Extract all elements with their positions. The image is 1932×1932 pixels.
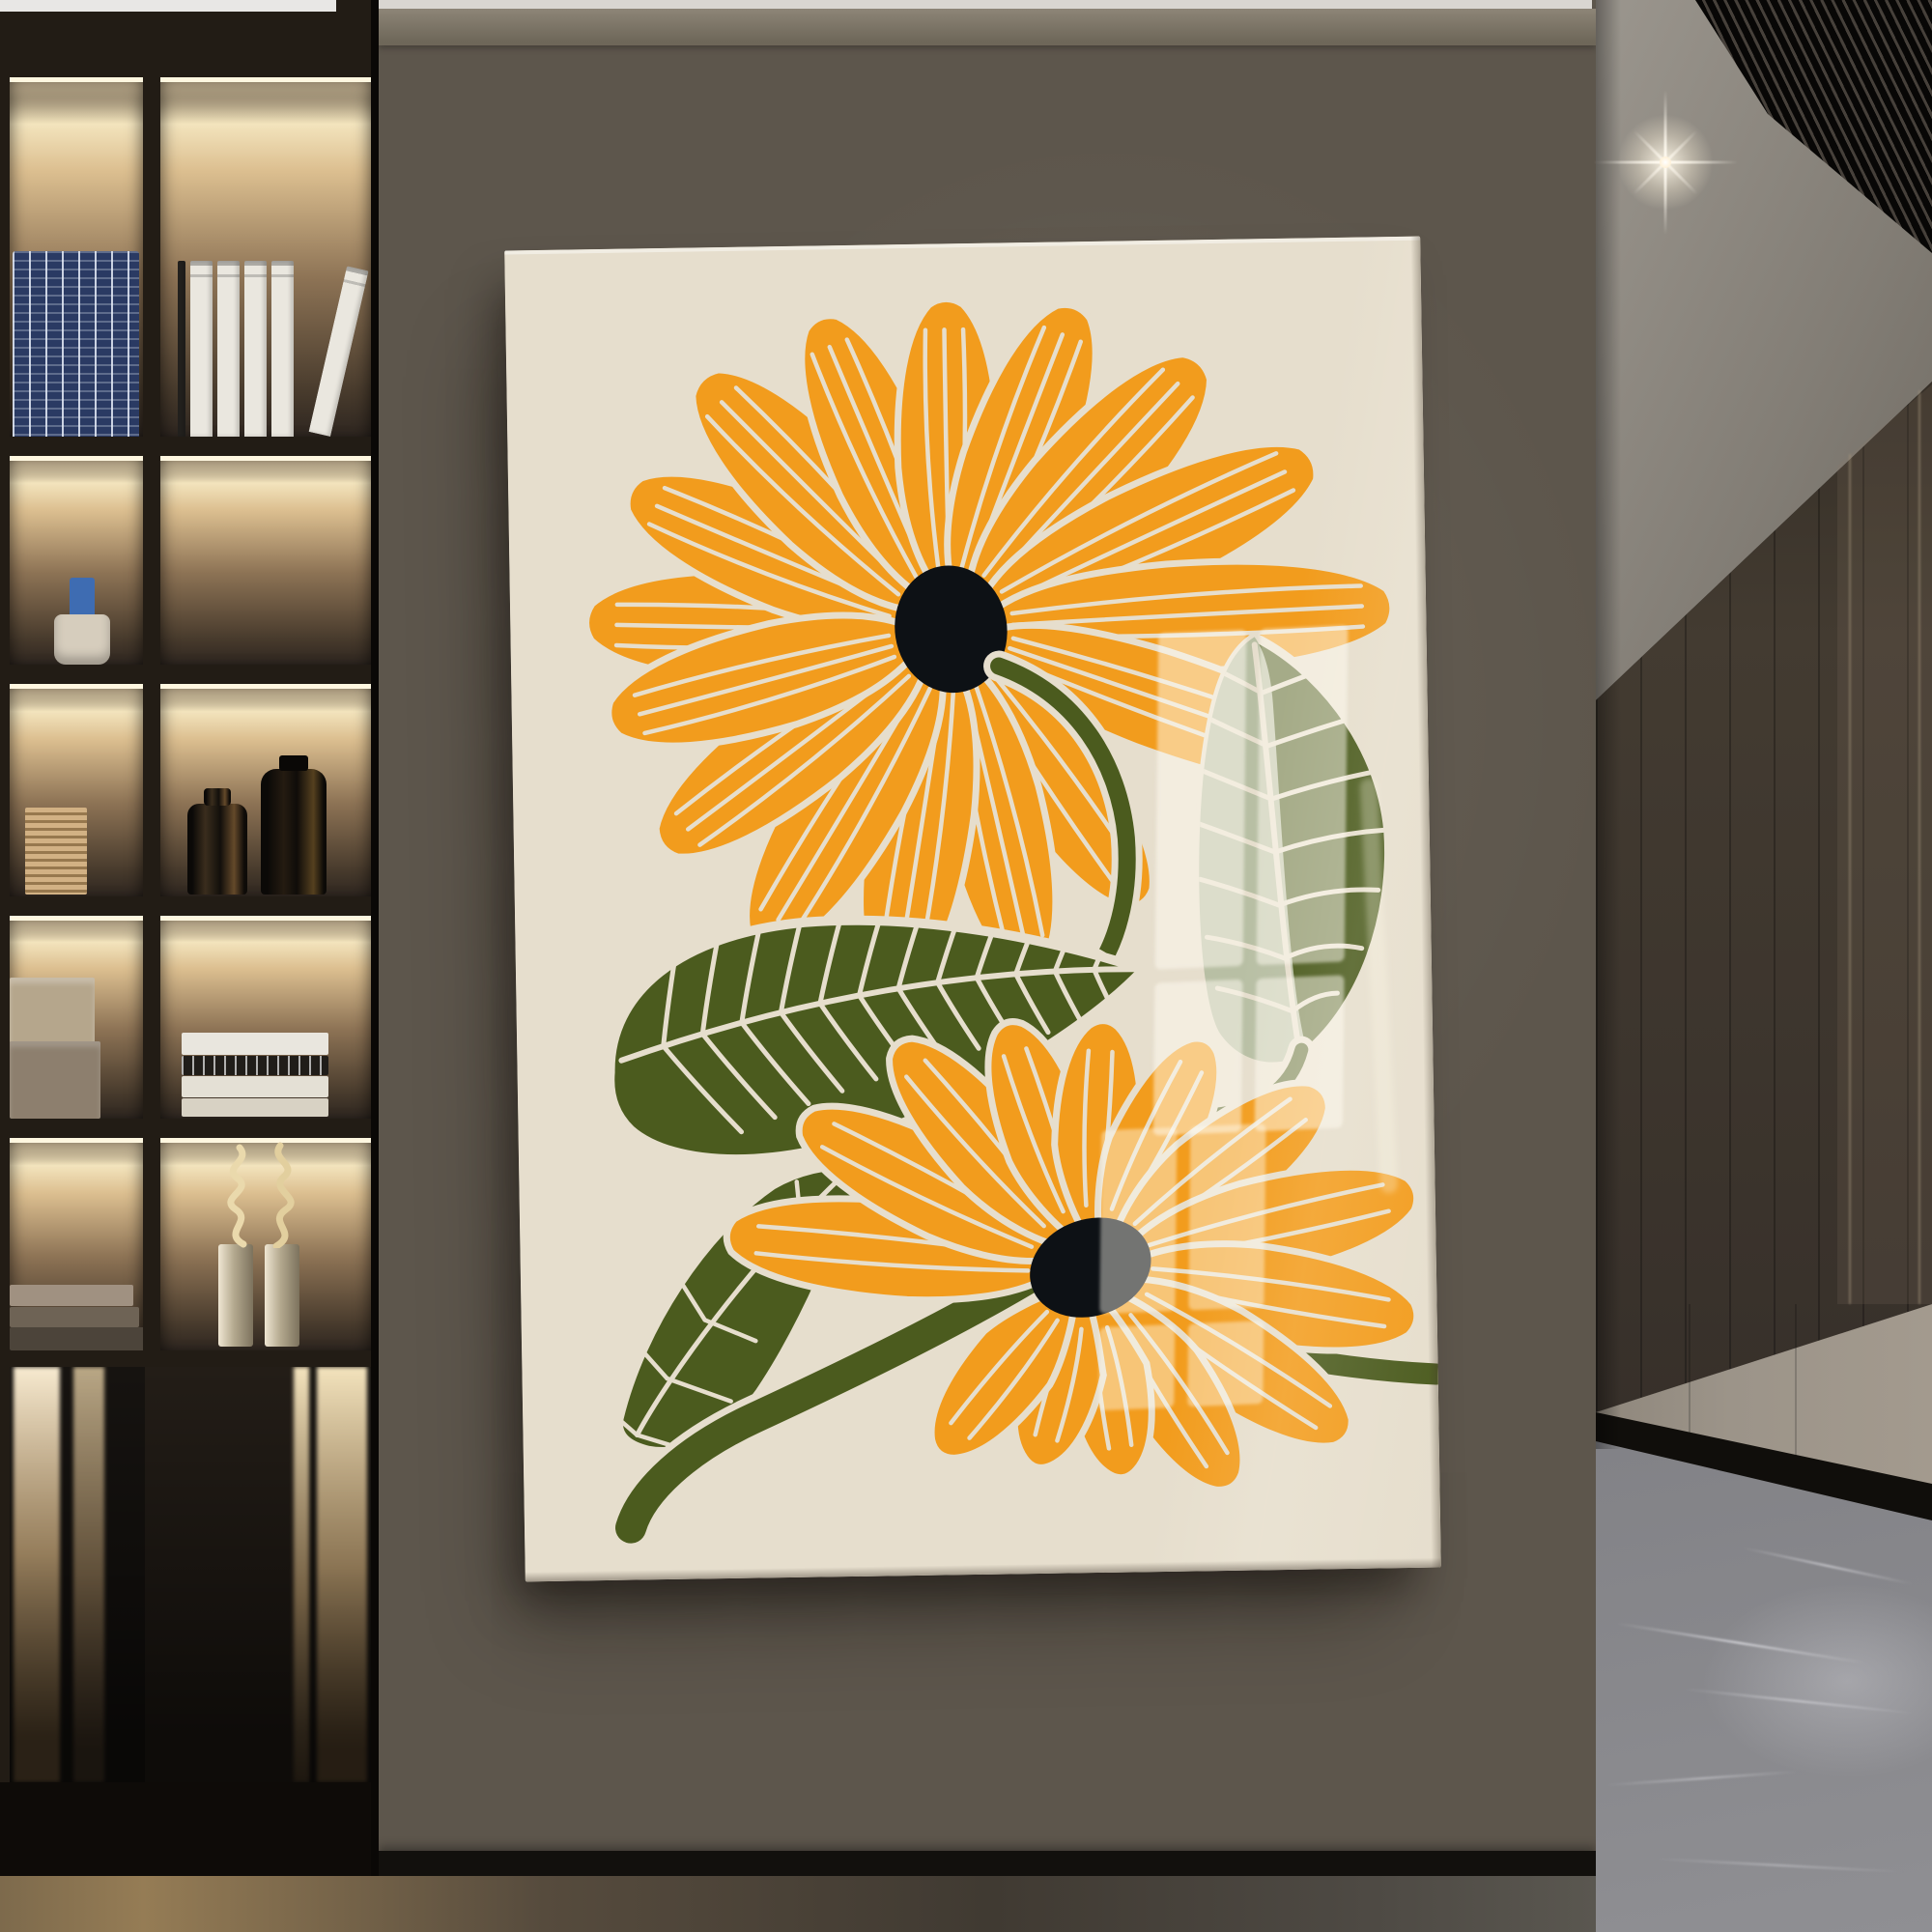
shelf-compartment-3-right xyxy=(160,684,371,896)
book-slab xyxy=(10,1307,139,1327)
book xyxy=(182,1033,328,1055)
wall-baseboard xyxy=(379,1851,1596,1877)
flower-artwork xyxy=(504,237,1441,1582)
white-books xyxy=(178,257,330,437)
cabinet-plinth xyxy=(0,1782,379,1876)
shelf-compartment-3-left xyxy=(10,684,143,896)
bookshelf-top-cap xyxy=(0,0,336,12)
spiral-sculpture xyxy=(218,1244,253,1347)
spiral-sculpture xyxy=(265,1244,299,1347)
beige-box xyxy=(10,1041,100,1119)
ceiling-downlight xyxy=(1646,143,1685,182)
hallway xyxy=(1596,0,1932,1932)
shelf-compartment-4-left xyxy=(10,916,143,1119)
book-slab xyxy=(10,1327,143,1350)
blue-cup xyxy=(70,578,95,618)
book-spine xyxy=(217,261,240,437)
cabinet-shading xyxy=(10,1367,371,1782)
dark-glass-bottle xyxy=(187,804,247,895)
shelf-compartment-5-right xyxy=(160,1138,371,1350)
foreground-floor xyxy=(0,1876,1596,1932)
book xyxy=(182,1056,328,1075)
light-core xyxy=(1660,156,1671,168)
book xyxy=(182,1076,328,1097)
shelf-compartment-1-right xyxy=(160,77,371,437)
bookshelf-side-frame xyxy=(371,0,379,1876)
shelf-compartment-4-right xyxy=(160,916,371,1119)
sculpture-base xyxy=(218,1244,253,1347)
book xyxy=(182,1098,328,1117)
horizontal-book-stack xyxy=(182,1032,328,1117)
book-spine xyxy=(244,261,267,437)
book-spine xyxy=(178,261,185,437)
cream-holder xyxy=(54,614,110,665)
panel-seam xyxy=(1918,390,1920,1304)
shelf-compartment-2-right xyxy=(160,456,371,665)
leaning-book xyxy=(309,266,369,437)
shelf-compartment-5-left xyxy=(10,1138,143,1350)
panel-seam xyxy=(1849,454,1851,1304)
bookshelf xyxy=(0,0,379,1876)
wall-corner-shadow xyxy=(1596,0,1621,1449)
book-spine xyxy=(190,261,213,437)
book-spine xyxy=(271,261,294,437)
shelf-compartment-2-left xyxy=(10,456,143,665)
interior-scene xyxy=(0,0,1932,1932)
shelf-compartment-1-left xyxy=(10,77,143,437)
dark-glass-jar xyxy=(261,769,327,895)
book-slab xyxy=(10,1285,133,1306)
wall-art xyxy=(504,237,1441,1582)
sculpture-base xyxy=(265,1244,299,1347)
lower-cabinet xyxy=(10,1367,371,1782)
end-wall-seam xyxy=(1795,1304,1797,1459)
ceiling-crown-band xyxy=(379,9,1596,45)
stacked-papers xyxy=(25,808,87,895)
navy-books xyxy=(13,251,139,437)
beige-box xyxy=(10,978,95,1043)
